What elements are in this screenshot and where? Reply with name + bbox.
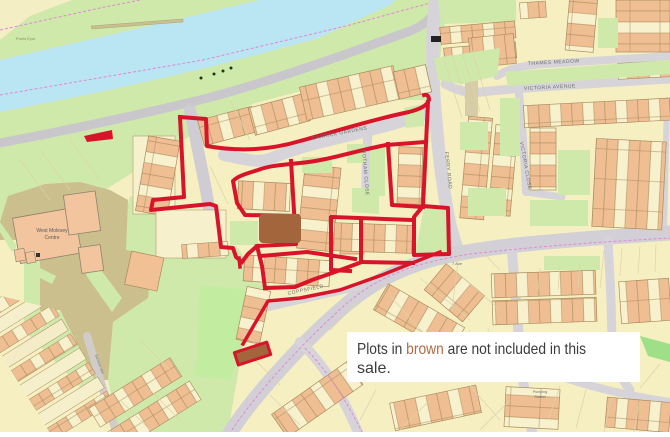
svg-text:West Molesey: West Molesey bbox=[36, 228, 68, 234]
svg-text:Plots in brown are not include: Plots in brown are not included in this bbox=[357, 341, 586, 358]
svg-text:Puels Eyot: Puels Eyot bbox=[16, 36, 36, 41]
svg-text:Station: Station bbox=[534, 395, 545, 399]
svg-text:Centre: Centre bbox=[44, 235, 59, 241]
svg-text:7 Ave: 7 Ave bbox=[452, 261, 463, 266]
svg-text:Pumping: Pumping bbox=[533, 390, 547, 394]
svg-text:sale.: sale. bbox=[357, 360, 391, 377]
